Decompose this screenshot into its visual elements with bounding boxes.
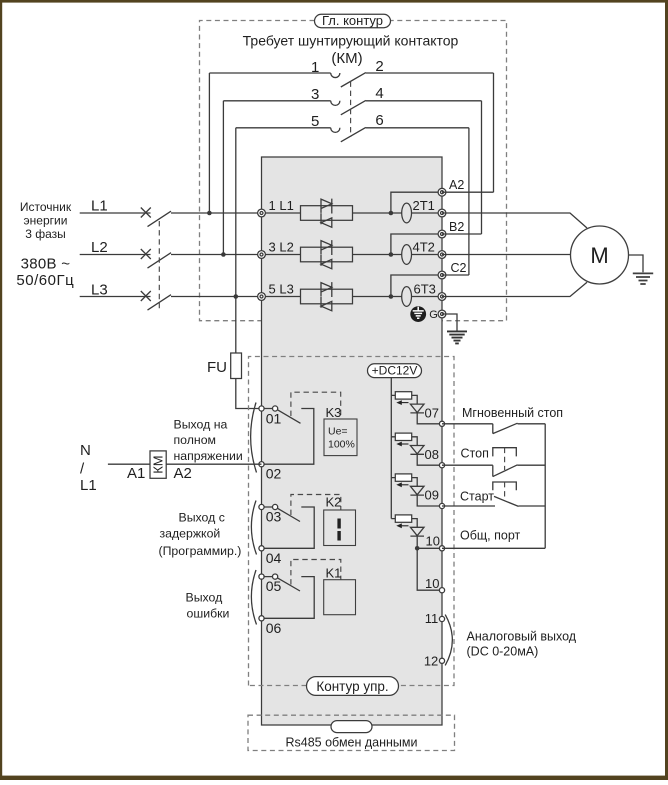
svg-text:Аналоговый выход: Аналоговый выход — [467, 630, 577, 644]
svg-text:K3: K3 — [326, 405, 342, 420]
svg-text:L1: L1 — [80, 477, 97, 494]
svg-text:КМ: КМ — [151, 455, 166, 473]
svg-text:C2: C2 — [451, 261, 467, 275]
svg-text:Выход с: Выход с — [179, 511, 225, 525]
svg-text:1: 1 — [311, 59, 319, 76]
svg-text:Rs485 обмен данными: Rs485 обмен данными — [286, 736, 418, 750]
svg-text:380В ~: 380В ~ — [21, 255, 71, 272]
svg-text:напряжении: напряжении — [174, 449, 243, 463]
svg-text:11: 11 — [425, 611, 439, 626]
svg-text:03: 03 — [266, 509, 282, 525]
svg-text:02: 02 — [266, 466, 282, 482]
svg-text:Требует шунтирующий контактор: Требует шунтирующий контактор — [243, 33, 459, 49]
svg-text:Источник: Источник — [20, 200, 72, 214]
svg-text:3 фазы: 3 фазы — [25, 227, 66, 241]
svg-text:5: 5 — [311, 113, 319, 130]
svg-text:полном: полном — [174, 433, 217, 447]
svg-text:FU: FU — [207, 359, 227, 376]
svg-text:Выход: Выход — [186, 591, 223, 605]
svg-text:5 L3: 5 L3 — [269, 282, 294, 297]
svg-text:(DC 0-20мА): (DC 0-20мА) — [467, 644, 539, 658]
svg-text:12: 12 — [424, 654, 438, 669]
svg-text:Контур упр.: Контур упр. — [316, 679, 388, 694]
svg-text:2T1: 2T1 — [413, 198, 435, 213]
svg-text:B2: B2 — [449, 220, 464, 234]
svg-text:4T2: 4T2 — [413, 240, 435, 255]
svg-text:3: 3 — [311, 86, 319, 103]
svg-text:Общ, порт: Общ, порт — [460, 529, 521, 543]
svg-text:05: 05 — [266, 578, 282, 594]
svg-text:энергии: энергии — [24, 213, 68, 227]
svg-text:Стоп: Стоп — [461, 446, 489, 460]
svg-text:А1: А1 — [127, 465, 145, 482]
svg-text:K1: K1 — [326, 566, 342, 581]
svg-text:100%: 100% — [328, 439, 355, 451]
svg-text:L2: L2 — [91, 239, 108, 256]
svg-text:Гл. контур: Гл. контур — [322, 13, 383, 28]
svg-text:K2: K2 — [326, 495, 342, 510]
svg-text:M: M — [590, 243, 608, 268]
svg-text:N: N — [80, 442, 91, 459]
svg-text:50/60Гц: 50/60Гц — [16, 272, 74, 289]
svg-text:ошибки: ошибки — [187, 607, 230, 621]
svg-text:+DC12V: +DC12V — [372, 363, 418, 377]
svg-text:04: 04 — [266, 550, 282, 566]
svg-text:1 L1: 1 L1 — [269, 198, 294, 213]
svg-text:G: G — [429, 309, 438, 321]
svg-text:10: 10 — [426, 533, 440, 548]
svg-text:06: 06 — [266, 620, 282, 636]
svg-text:3 L2: 3 L2 — [269, 240, 294, 255]
svg-text:4: 4 — [375, 85, 383, 102]
svg-text:(КМ): (КМ) — [331, 50, 362, 67]
svg-text:A2: A2 — [449, 178, 464, 192]
svg-text:6T3: 6T3 — [414, 282, 436, 297]
svg-text:L3: L3 — [91, 281, 108, 298]
svg-text:09: 09 — [425, 488, 439, 503]
svg-text:(Программир.): (Программир.) — [159, 544, 242, 558]
svg-text:задержкой: задержкой — [160, 526, 221, 540]
svg-text:08: 08 — [425, 447, 439, 462]
svg-text:2: 2 — [375, 58, 383, 75]
svg-text:А2: А2 — [174, 465, 192, 482]
svg-text:07: 07 — [425, 406, 439, 421]
svg-text:L1: L1 — [91, 197, 108, 214]
svg-text:10: 10 — [425, 576, 439, 591]
svg-text:Старт: Старт — [460, 490, 494, 504]
svg-text:01: 01 — [266, 410, 282, 426]
svg-text:Выход на: Выход на — [174, 417, 228, 431]
svg-text:Ue=: Ue= — [328, 426, 348, 438]
svg-text:6: 6 — [375, 112, 383, 129]
svg-text:Мгновенный стоп: Мгновенный стоп — [462, 406, 563, 420]
